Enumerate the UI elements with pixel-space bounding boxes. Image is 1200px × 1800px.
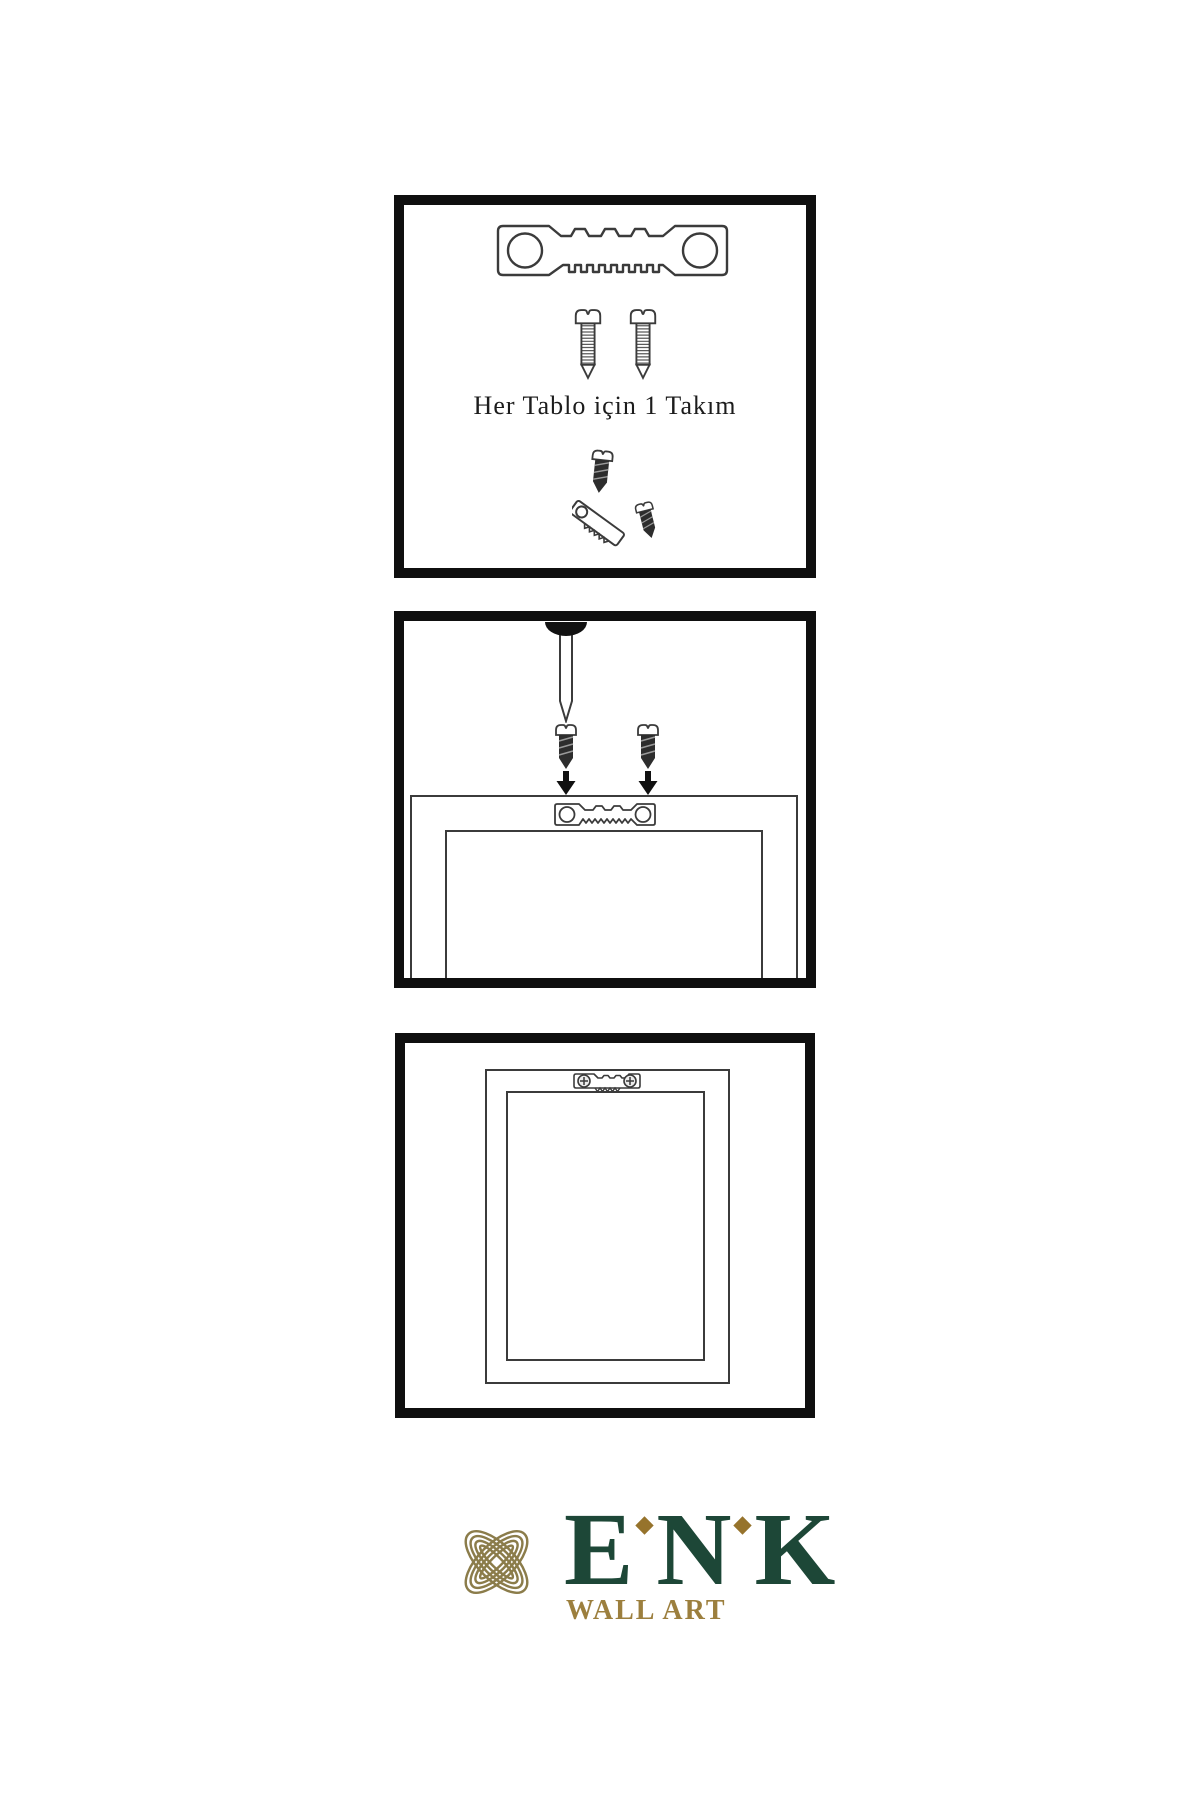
brand-letter: K xyxy=(754,1492,835,1607)
brand-logo: ENK WALL ART xyxy=(430,1495,870,1645)
diamond-accent-icon xyxy=(734,1516,752,1534)
screw-icon xyxy=(627,305,659,383)
brand-tagline: WALL ART xyxy=(566,1595,727,1627)
screw-icon xyxy=(572,305,604,383)
brand-letter: E xyxy=(564,1492,633,1607)
diamond-accent-icon xyxy=(636,1516,654,1534)
frame-back-inner xyxy=(445,830,763,988)
kit-caption: Her Tablo için 1 Takım xyxy=(404,391,806,421)
brand-letter: N xyxy=(656,1492,731,1607)
panel-mounted-frame xyxy=(395,1033,815,1418)
dark-screw-icon xyxy=(551,722,581,770)
mounted-hanger-with-screws-icon xyxy=(573,1073,641,1093)
instruction-sheet: Her Tablo için 1 Takım xyxy=(0,0,1200,1800)
knot-logo-icon xyxy=(440,1498,553,1626)
down-arrow-icon xyxy=(556,771,576,795)
dark-screw-icon xyxy=(633,722,663,770)
wall-nail-icon xyxy=(544,621,588,723)
panel-wall-installation xyxy=(394,611,816,988)
screw-into-hanger-detail-icon xyxy=(572,448,664,558)
panel-hardware-kit: Her Tablo için 1 Takım xyxy=(394,195,816,578)
frame-back-inner xyxy=(506,1091,705,1361)
sawtooth-hanger-icon xyxy=(553,802,657,827)
sawtooth-hanger-icon xyxy=(495,223,730,278)
brand-name: ENK xyxy=(564,1502,835,1597)
down-arrow-icon xyxy=(638,771,658,795)
